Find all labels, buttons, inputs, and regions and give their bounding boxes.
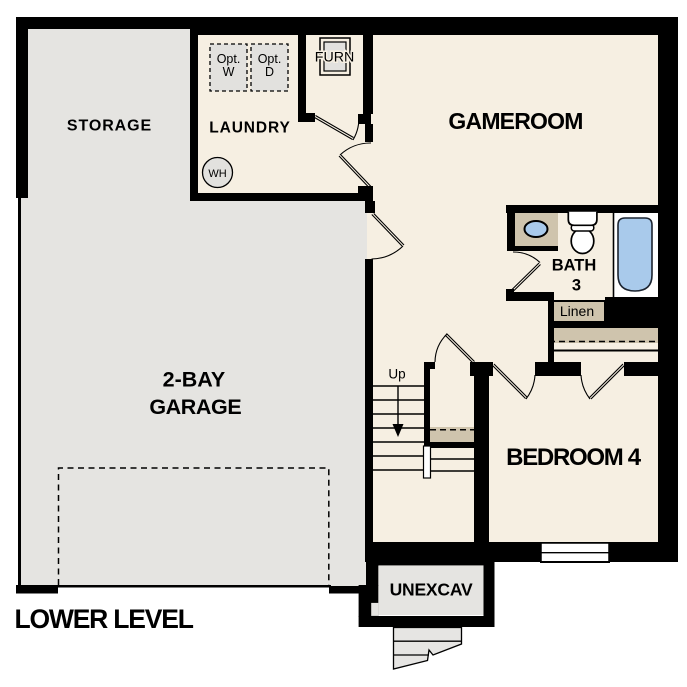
svg-text:D: D [265,65,274,79]
svg-text:Up: Up [388,366,405,381]
svg-text:GARAGE: GARAGE [149,395,241,419]
svg-text:UNEXCAV: UNEXCAV [390,580,473,600]
svg-text:BEDROOM 4: BEDROOM 4 [506,444,642,471]
svg-text:Opt.: Opt. [217,52,241,66]
svg-text:Linen: Linen [560,303,594,319]
svg-text:STORAGE: STORAGE [67,117,152,134]
svg-text:LAUNDRY: LAUNDRY [209,119,291,136]
svg-text:FURN: FURN [315,50,354,66]
svg-text:2-BAY: 2-BAY [163,368,226,392]
svg-text:W: W [223,65,235,79]
svg-text:GAMEROOM: GAMEROOM [448,108,582,134]
svg-text:WH: WH [208,168,226,180]
svg-text:BATH: BATH [552,257,597,275]
svg-text:3: 3 [572,276,581,294]
svg-text:LOWER LEVEL: LOWER LEVEL [15,604,194,634]
svg-text:Opt.: Opt. [258,52,282,66]
